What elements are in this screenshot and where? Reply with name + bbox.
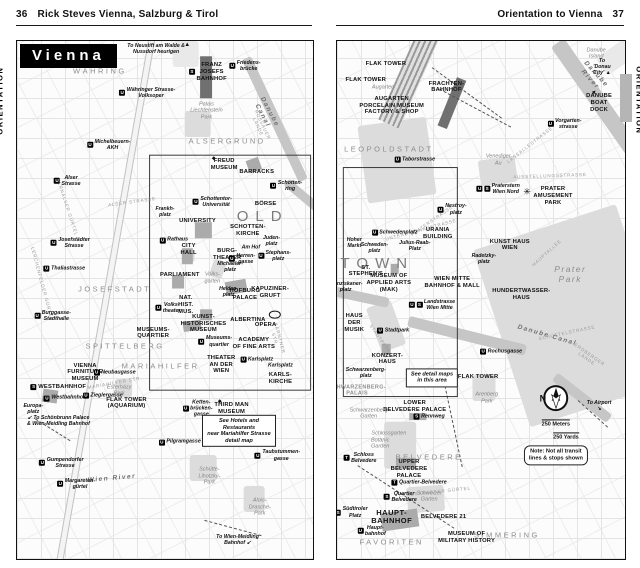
district-josefstadt-text: JOSEFSTADT [78, 285, 151, 294]
station-margareten-g-rtel: UMargareten- gürtel [57, 478, 95, 491]
poi-flak-tower: FLAK TOWER [366, 61, 407, 69]
smallitalic-frankh-platz-text: Frankh- platz [155, 206, 174, 218]
left-header-rule [16, 25, 312, 26]
ubahn-icon: U [54, 178, 60, 184]
station-neubaugasse-text: Neubaugasse [101, 369, 135, 375]
station-karlsplatz-text: Karlsplatz [248, 356, 273, 362]
smallitalic-karlsplatz-text: Karlsplatz [268, 363, 293, 369]
vienna-map-right: LEOPOLDSTADTTOWNBELVEDEREFAVORITENSIMMER… [336, 40, 626, 560]
ubahn-icon: U [160, 237, 166, 243]
park-botanic-garden: Botanic Garden [371, 438, 389, 451]
district-alsergrund-text: ALSERGRUND [189, 137, 266, 146]
station-stephans-platz: UStephans- platz [258, 250, 291, 263]
poi-theater-an-der-wien-text: THEATER AN DER WIEN [207, 355, 235, 375]
station-landstrasse-wien-mitte: USLandstrasse Wien Mitte [409, 299, 455, 312]
station-pilgramgasse: UPilgramgasse [159, 439, 201, 446]
station-rochusgasse: URochusgasse [480, 348, 522, 355]
ubahn-icon: U [377, 328, 383, 334]
park-esterh-zy-park-text: Esterházy Park [107, 384, 131, 397]
station-haupt-bahnhof-text: Haupt- bahnhof [365, 524, 386, 537]
smallitalic-to-sch-nbrunn-palace-wien-me: ↙ To Schönbrunn Palace & Wien-Meidling B… [27, 415, 90, 427]
station-alser-strasse: UAlser Strasse [54, 175, 81, 188]
poi-gray-schwarzenberg-palais-text: SCHWARZENBERG- PALAIS [336, 384, 386, 397]
ubahn-icon: U [198, 338, 204, 344]
station-schloss-belvedere: TSchloss Belvedere [344, 452, 377, 465]
sight-marker-icon: ◆ [218, 399, 222, 406]
station-friedens-br-cke-text: Friedens- brücke [237, 60, 261, 73]
poi-kunst-haus-wien: KUNST HAUS WIEN [490, 239, 530, 253]
station-schwedenplatz-text: Schwedenplatz [379, 229, 417, 235]
smallitalic-julius-raab-platz: Julius-Raab- Platz [399, 240, 430, 252]
smallitalic-schwarzenberg-platz: Schwarzenberg- platz [346, 366, 386, 378]
ubahn-icon: U [357, 528, 363, 534]
district-w-hring: WÄHRING [73, 67, 127, 76]
right-orientation-tab: ORIENTATION [634, 66, 640, 134]
poi-kunst-historisches-museum-text: KUNST- HISTORISCHES MUSEUM [181, 314, 227, 334]
ubahn-icon: U [240, 356, 246, 362]
park-big-prater-park: Prater Park [554, 264, 586, 284]
vienna-map-left: Vienna WÄHRINGALSERGRUNDJOSEFSTADTSPITTE… [16, 40, 314, 560]
street-ausstellungsstrasse-text: AUSSTELLUNGSSTRASSE [513, 172, 587, 180]
tourist-info-icon [268, 310, 280, 319]
station-haupt-bahnhof: UHaupt- bahnhof [357, 524, 385, 537]
station-friedens-br-cke: UFriedens- brücke [229, 60, 260, 73]
westbahnhof-label: SWESTBAHNHOF [31, 384, 86, 392]
station-volks-theater: UVolks- theater [155, 302, 180, 315]
station-nestroy-platz-text: Nestroy- platz [445, 203, 467, 216]
station-westbahnhof-text: Westbahnhof [51, 395, 84, 401]
station-rennweg-text: Rennweg [421, 413, 445, 419]
park-arenberg-park: Arenberg Park [475, 392, 498, 405]
station-stephans-platz-text: Stephans- platz [265, 250, 291, 263]
poi-museums-quartier-text: MUSEUMS- QUARTIER [137, 327, 170, 341]
park-schlossgarten: Schlossgarten [371, 430, 406, 437]
poi-urania-building-text: URANIA BUILDING [423, 227, 453, 241]
ubahn-icon: U [258, 253, 264, 259]
ubahn-icon: U [87, 142, 93, 148]
sight-marker-icon-text: ◆ [212, 157, 216, 163]
station-gumpendorfer-strasse-text: Gumpendorfer Strasse [47, 457, 84, 470]
left-page-number: 36 [16, 9, 28, 20]
poi-kunst-haus-wien-text: KUNST HAUS WIEN [490, 239, 530, 253]
street-ausstellungsstrasse: AUSSTELLUNGSSTRASSE [513, 172, 587, 180]
smallitalic-to-donau-city: To 'Donau City' ▲ [590, 58, 613, 76]
district-leopoldstadt: LEOPOLDSTADT [344, 145, 433, 154]
poi-kapuziner-gruft-text: KAPUZINER- GRUFT [251, 286, 289, 300]
right-header-rule [336, 25, 624, 26]
poi-museums-quartier: MUSEUMS- QUARTIER [137, 327, 170, 341]
station-w-hringer-strasse-volksoper-text: Währinger Strasse- Volksoper [127, 87, 176, 100]
poi-lower-belvedere-palace: LOWER BELVEDERE PALACE [383, 400, 446, 414]
compass-n-label-text: N [540, 393, 547, 404]
poi-opera-text: OPERA [255, 322, 277, 329]
poi-b-rse-text: BÖRSE [255, 201, 277, 208]
ubahn-icon: U [94, 369, 100, 375]
franz-josefs-bahnhof-label: SFRANZ JOSEFS BAHNHOF [189, 62, 227, 82]
park-sch-tte-lihotzky-park-text: Schütte- Lihotzky- Park [198, 466, 220, 485]
compass-n-label: N [540, 393, 547, 404]
smallitalic-juden-platz-text: Juden- platz [263, 235, 280, 247]
station-gumpendorfer-strasse: UGumpendorfer Strasse [39, 457, 83, 470]
smallitalic-to-neustift-am-walde-nussdor-text: To Neustift am Walde & Nussdorf heurigen [127, 43, 185, 55]
poi-opera: OPERA [255, 322, 277, 330]
smallitalic-franziskaner-platz: Franziskaner- platz [336, 281, 362, 293]
westbahnhof-label-text: WESTBAHNHOF [38, 384, 86, 391]
station-schwedenplatz: USchwedenplatz [372, 229, 418, 236]
station-quartier-belvedere: TQuartier-Belvedere [391, 479, 446, 486]
smallitalic-hoher-markt: Hoher Markt [347, 237, 362, 249]
station-quartier-belvedere-text: Quartier Belvedere [391, 491, 416, 504]
ubahn-icon: U [372, 229, 378, 235]
ubahn-icon: U [477, 186, 483, 192]
poi-konzert-haus-text: KONZERT- HAUS [372, 353, 403, 367]
poi-belvedere-21: BELVEDERE 21 [421, 514, 466, 522]
district-favoriten-text: FAVORITEN [359, 539, 423, 548]
poi-university-text: UNIVERSITY [179, 218, 216, 225]
smallitalic-to-donau-city-text: To 'Donau City' ▲ [590, 58, 613, 76]
poi-university: UNIVERSITY [179, 218, 216, 226]
ubahn-icon: U [409, 302, 415, 308]
park-palais-liechtenstein-park: Palais Liechtenstein Park [190, 101, 222, 120]
poi-frachten-bahnhof-text: FRACHTEN- BAHNHOF [429, 81, 465, 95]
ubahn-icon: U [547, 121, 553, 127]
smallitalic-am-hof-text: Am Hof [242, 245, 260, 251]
poi-haus-der-musik: HAUS DER MUSIK [344, 313, 364, 333]
station-rochusgasse-text: Rochusgasse [488, 348, 522, 354]
station-rathaus-text: Rathaus [167, 237, 188, 243]
poi-academy-of-fine-arts-text: ACADEMY OF FINE ARTS [233, 337, 275, 351]
station-landstrasse-wien-mitte-text: Landstrasse Wien Mitte [424, 299, 455, 312]
smallitalic-michaeler-platz: Michaeler- platz [217, 261, 243, 273]
smallitalic-to-wien-meidling-bahnhof-text: To Wien-Meidling Bahnhof ↙ [216, 534, 259, 546]
poi-barracks: BARRACKS [239, 169, 274, 177]
detail-maps-note-text: See detail maps in this area [411, 371, 453, 384]
ubahn-icon: U [119, 90, 125, 96]
tram-icon: T [391, 480, 397, 486]
park-schlossgarten-text: Schlossgarten [371, 430, 406, 436]
poi-gray-schwarzenberg-palais: SCHWARZENBERG- PALAIS [336, 384, 386, 397]
station-praterstern-wien-nord-text: Praterstern Wien Nord [492, 182, 520, 195]
park-palais-liechtenstein-park-text: Palais Liechtenstein Park [190, 101, 222, 120]
ubahn-icon: U [394, 157, 400, 163]
book-spread: 36Rick Steves Vienna, Salzburg & Tirol O… [0, 0, 640, 568]
poi-frachten-bahnhof: FRACHTEN- BAHNHOF [429, 81, 465, 95]
station-vorgarten-strasse-text: Vorgarten- strasse [555, 118, 582, 131]
park-schweizer-garten-text: Schweizer Garten [416, 490, 441, 503]
direction-arrow-icon: ▲ [184, 42, 190, 50]
poi-theater-an-der-wien: THEATER AN DER WIEN [207, 355, 235, 375]
poi-kapuziner-gruft: KAPUZINER- GRUFT [251, 286, 289, 300]
station-schotten-ring-text: Schotten- ring [278, 180, 302, 193]
station-thaliastrasse: UThaliastrasse [44, 266, 85, 273]
direction-arrow-icon-text: ▲ [184, 42, 190, 49]
sbahn-icon: S [484, 186, 490, 192]
smallitalic-to-airport: To Airport ↘ [586, 400, 612, 412]
smallitalic-to-sch-nbrunn-palace-wien-me-text: ↙ To Schönbrunn Palace & Wien-Meidling B… [27, 415, 90, 427]
ubahn-icon: U [270, 183, 276, 189]
district-favoriten: FAVORITEN [359, 539, 423, 548]
street-lassallestrasse: LASSALLESTRASSE [506, 125, 554, 164]
smallitalic-to-wien-meidling-bahnhof: To Wien-Meidling Bahnhof ↙ [216, 534, 259, 546]
ubahn-icon: U [44, 395, 50, 401]
sbahn-icon: S [414, 413, 420, 419]
station-schotten-ring: USchotten- ring [270, 180, 302, 193]
ferris-wheel-icon: ✳ [523, 186, 531, 197]
park-venediger-au-text: Venediger Au [486, 154, 511, 167]
poi-schotten-kirche: SCHOTTEN- KIRCHE [230, 224, 266, 238]
station-karlsplatz: UKarlsplatz [240, 356, 273, 363]
poi-konzert-haus: KONZERT- HAUS [372, 353, 403, 367]
poi-kunst-historisches-museum: KUNST- HISTORISCHES MUSEUM [181, 314, 227, 334]
station-josefst-dter-strasse-text: Josefstädter Strasse [58, 237, 90, 250]
transit-note-text: Note: Not all transit lines & stops show… [529, 449, 583, 462]
station-rennweg: SRennweg [414, 413, 445, 420]
right-page-number: 37 [612, 9, 624, 20]
poi-prater-amusement-park-text: PRATER AMUSEMENT PARK [533, 186, 572, 206]
smallitalic-europa-platz: Europa- platz [23, 403, 43, 415]
poi-upper-belvedere-palace-text: UPPER BELVEDERE PALACE [391, 459, 428, 479]
tram-icon: T [344, 455, 350, 461]
ubahn-icon: U [438, 206, 444, 212]
poi-parliament-text: PARLIAMENT [160, 272, 200, 279]
smallitalic-to-airport-text: To Airport ↘ [586, 400, 612, 412]
left-orientation-tab: ORIENTATION [0, 66, 5, 134]
district-leopoldstadt-text: LEOPOLDSTADT [344, 145, 433, 154]
park-alois-drasche-park-text: Alois- Drasche- Park [249, 497, 271, 516]
station-taubstummen-gasse-text: Taubstummen- gasse [262, 449, 300, 462]
smallitalic-frankh-platz: Frankh- platz [155, 206, 174, 218]
north-compass-icon [543, 386, 569, 412]
station-quartier-belvedere-text: Quartier-Belvedere [399, 479, 447, 485]
detail-maps-note: See detail maps in this area [406, 368, 458, 387]
ubahn-icon: U [480, 349, 486, 355]
station-w-hringer-strasse-volksoper: UWähringer Strasse- Volksoper [119, 87, 175, 100]
station-neubaugasse: UNeubaugasse [94, 369, 136, 376]
hotels-detail-note: See Hotels and Restaurants near Mariahil… [202, 415, 276, 447]
smallitalic-radetzky-platz: Radetzky- platz [472, 252, 497, 264]
district-josefstadt: JOSEFSTADT [78, 285, 151, 294]
smallitalic-julius-raab-platz-text: Julius-Raab- Platz [399, 240, 430, 252]
station-vorgarten-strasse: UVorgarten- strasse [547, 118, 581, 131]
district-spittelberg: SPITTELBERG [85, 342, 164, 351]
park-botanic-garden-text: Botanic Garden [371, 438, 389, 451]
poi-b-rse: BÖRSE [255, 201, 277, 209]
station-taborstrasse-text: Taborstrasse [402, 157, 435, 163]
station-stadtpark: UStadtpark [377, 328, 409, 335]
park-schwarzenberg-garten: Schwarzenberg Garten [350, 407, 388, 420]
poi-wien-mitte-bahnhof-mall: WIEN MITTE BAHNHOF & MALL [425, 276, 480, 290]
poi-flak-tower: FLAK TOWER [458, 374, 499, 382]
park-augarten-text: Augarten [372, 84, 394, 90]
right-page-header: Orientation to Vienna37 [497, 9, 624, 20]
poi-karls-kirche-text: KARLS- KIRCHE [269, 372, 292, 386]
ubahn-icon: U [51, 240, 57, 246]
poi-museum-of-military-history: MUSEUM OF MILITARY HISTORY [438, 531, 495, 545]
station-schloss-belvedere-text: Schloss Belvedere [351, 452, 376, 465]
park-sch-tte-lihotzky-park: Schütte- Lihotzky- Park [198, 466, 220, 485]
poi-city-hall-text: CITY HALL [181, 243, 197, 257]
ubahn-icon: U [34, 313, 40, 319]
poi-flak-tower-text: FLAK TOWER [366, 61, 407, 68]
sight-marker-icon-text: ◆ [218, 399, 222, 405]
park-augarten: Augarten [372, 84, 394, 91]
poi-lower-belvedere-palace-text: LOWER BELVEDERE PALACE [383, 400, 446, 414]
district-w-hring-text: WÄHRING [73, 67, 127, 76]
smallitalic-hoher-markt-text: Hoher Markt [347, 237, 362, 249]
poi-parliament: PARLIAMENT [160, 272, 200, 280]
left-header-title: Rick Steves Vienna, Salzburg & Tirol [38, 9, 219, 20]
poi-haus-der-musik-text: HAUS DER MUSIK [344, 313, 364, 333]
ubahn-icon: U [255, 452, 261, 458]
ubahn-icon: U [39, 460, 45, 466]
right-header-title: Orientation to Vienna [497, 9, 602, 20]
station-museums-quartier: UMuseums- quartier [198, 335, 232, 348]
district-alsergrund: ALSERGRUND [189, 137, 266, 146]
transit-note: Note: Not all transit lines & stops show… [524, 446, 588, 465]
sbahn-icon: S [31, 385, 37, 391]
station-taubstummen-gasse: UTaubstummen- gasse [255, 449, 300, 462]
station-rathaus: URathaus [160, 237, 188, 244]
poi-museum-of-military-history-text: MUSEUM OF MILITARY HISTORY [438, 531, 495, 545]
smallitalic-franziskaner-platz-text: Franziskaner- platz [336, 281, 362, 293]
ubahn-icon: U [183, 406, 189, 412]
ubahn-icon: U [193, 199, 199, 205]
poi-wien-mitte-bahnhof-mall-text: WIEN MITTE BAHNHOF & MALL [425, 276, 480, 290]
ubahn-icon: U [155, 305, 161, 311]
station-nestroy-platz: UNestroy- platz [438, 203, 467, 216]
park-venediger-au: Venediger Au [486, 154, 511, 167]
poi-barracks-text: BARRACKS [239, 169, 274, 176]
smallitalic-schweden-platz-text: Schweden- platz [361, 242, 388, 254]
map-title: Vienna [20, 44, 117, 68]
district-spittelberg-text: SPITTELBERG [85, 342, 164, 351]
poi-hundertwasser-haus-text: HUNDERTWASSER- HAUS [492, 288, 550, 302]
sbahn-icon: S [336, 509, 341, 515]
poi-upper-belvedere-palace: UPPER BELVEDERE PALACE [391, 459, 428, 479]
station-museums-quartier-text: Museums- quartier [206, 335, 232, 348]
sight-marker-icon: ◆ [212, 157, 216, 164]
station-s-dtiroler-platz-text: Südtiroler Platz [343, 506, 368, 519]
poi-prater-amusement-park: PRATER AMUSEMENT PARK [533, 186, 572, 206]
smallitalic-michaeler-platz-text: Michaeler- platz [217, 261, 243, 273]
ubahn-icon: U [44, 266, 50, 272]
poi-academy-of-fine-arts: ACADEMY OF FINE ARTS [233, 337, 275, 351]
ferris-wheel-icon-text: ✳ [523, 186, 531, 197]
smallitalic-karlsplatz: Karlsplatz [268, 363, 293, 370]
scale-meters: 250 Meters [542, 420, 570, 429]
station-margareten-g-rtel-text: Margareten- gürtel [65, 478, 95, 491]
scale-meters-text: 250 Meters [542, 422, 570, 428]
poi-schotten-kirche-text: SCHOTTEN- KIRCHE [230, 224, 266, 238]
scale-yards: 250 Yards [553, 433, 579, 442]
smallitalic-to-neustift-am-walde-nussdor: To Neustift am Walde & Nussdorf heurigen [127, 43, 185, 55]
station-michelbeuern-akh: UMichelbeuern- AKH [87, 138, 130, 151]
station-s-dtiroler-platz: SSüdtiroler Platz [336, 506, 368, 519]
poi-hundertwasser-haus: HUNDERTWASSER- HAUS [492, 288, 550, 302]
sbahn-icon: S [189, 69, 195, 75]
park-volks-garten-text: Volks- garten [205, 272, 221, 285]
park-schwarzenberg-garten-text: Schwarzenberg Garten [350, 407, 388, 420]
poi-city-hall: CITY HALL [181, 243, 197, 257]
station-westbahnhof: UWestbahnhof [44, 395, 85, 402]
street-lassallestrasse-text: LASSALLESTRASSE [506, 125, 554, 164]
station-stadtpark-text: Stadtpark [385, 328, 409, 334]
park-esterh-zy-park: Esterházy Park [107, 384, 131, 397]
station-michelbeuern-akh-text: Michelbeuern- AKH [95, 138, 131, 151]
scale-yards-text: 250 Yards [553, 435, 579, 441]
poi-augarten-porcelain-museum-fa-text: AUGARTEN PORCELAIN MUSEUM FACTORY & SHOP [359, 96, 424, 116]
franz-josefs-bahnhof-label-text: FRANZ JOSEFS BAHNHOF [196, 62, 226, 82]
poi-museum-of-applied-arts-mak: MUSEUM OF APPLIED ARTS (MAK) [366, 273, 411, 293]
park-arenberg-park-text: Arenberg Park [475, 392, 498, 405]
poi-karls-kirche: KARLS- KIRCHE [269, 372, 292, 386]
smallitalic-europa-platz-text: Europa- platz [23, 403, 43, 415]
poi-flak-tower-text: FLAK TOWER [346, 77, 387, 84]
sbahn-icon: S [384, 494, 390, 500]
smallitalic-juden-platz: Juden- platz [263, 235, 280, 247]
station-volks-theater-text: Volks- theater [163, 302, 181, 315]
park-alois-drasche-park: Alois- Drasche- Park [249, 497, 271, 516]
smallitalic-helden-platz-text: Helden- platz [219, 286, 238, 298]
ubahn-icon: U [57, 481, 63, 487]
station-burggasse-stadthalle: UBurggasse- Stadthalle [34, 309, 71, 322]
smallitalic-schwarzenberg-platz-text: Schwarzenberg- platz [346, 366, 386, 378]
park-volks-garten: Volks- garten [205, 272, 221, 285]
station-taborstrasse: UTaborstrasse [394, 157, 435, 164]
ubahn-icon: U [229, 63, 235, 69]
smallitalic-helden-platz: Helden- platz [219, 286, 238, 298]
station-quartier-belvedere: SQuartier Belvedere [384, 491, 417, 504]
park-schweizer-garten: Schweizer Garten [416, 490, 441, 503]
poi-museum-of-applied-arts-mak-text: MUSEUM OF APPLIED ARTS (MAK) [366, 273, 411, 293]
smallitalic-schweden-platz: Schweden- platz [361, 242, 388, 254]
station-burggasse-stadthalle-text: Burggasse- Stadthalle [42, 309, 71, 322]
hotels-detail-note-text: See Hotels and Restaurants near Mariahil… [207, 418, 271, 444]
ubahn-icon: U [159, 439, 165, 445]
ubahn-icon: U [83, 393, 89, 399]
poi-augarten-porcelain-museum-fa: AUGARTEN PORCELAIN MUSEUM FACTORY & SHOP [359, 96, 424, 116]
station-alser-strasse-text: Alser Strasse [61, 175, 80, 188]
right-tab-band [620, 74, 632, 122]
smallitalic-am-hof: Am Hof [242, 245, 260, 252]
sbahn-icon: S [416, 302, 422, 308]
station-josefst-dter-strasse: UJosefstädter Strasse [51, 237, 90, 250]
station-pilgramgasse-text: Pilgramgasse [166, 439, 200, 445]
poi-belvedere-21-text: BELVEDERE 21 [421, 514, 466, 521]
poi-flak-tower-text: FLAK TOWER [458, 374, 499, 381]
station-schottentor-universit-t: USchottentor- Universität [193, 195, 232, 208]
station-schottentor-universit-t-text: Schottentor- Universität [200, 195, 231, 208]
station-praterstern-wien-nord: USPraterstern Wien Nord [477, 182, 520, 195]
poi-urania-building: URANIA BUILDING [423, 227, 453, 241]
station-thaliastrasse-text: Thaliastrasse [51, 266, 85, 272]
left-page-header: 36Rick Steves Vienna, Salzburg & Tirol [16, 9, 218, 20]
park-big-prater-park-text: Prater Park [554, 264, 586, 284]
smallitalic-radetzky-platz-text: Radetzky- platz [472, 252, 497, 264]
